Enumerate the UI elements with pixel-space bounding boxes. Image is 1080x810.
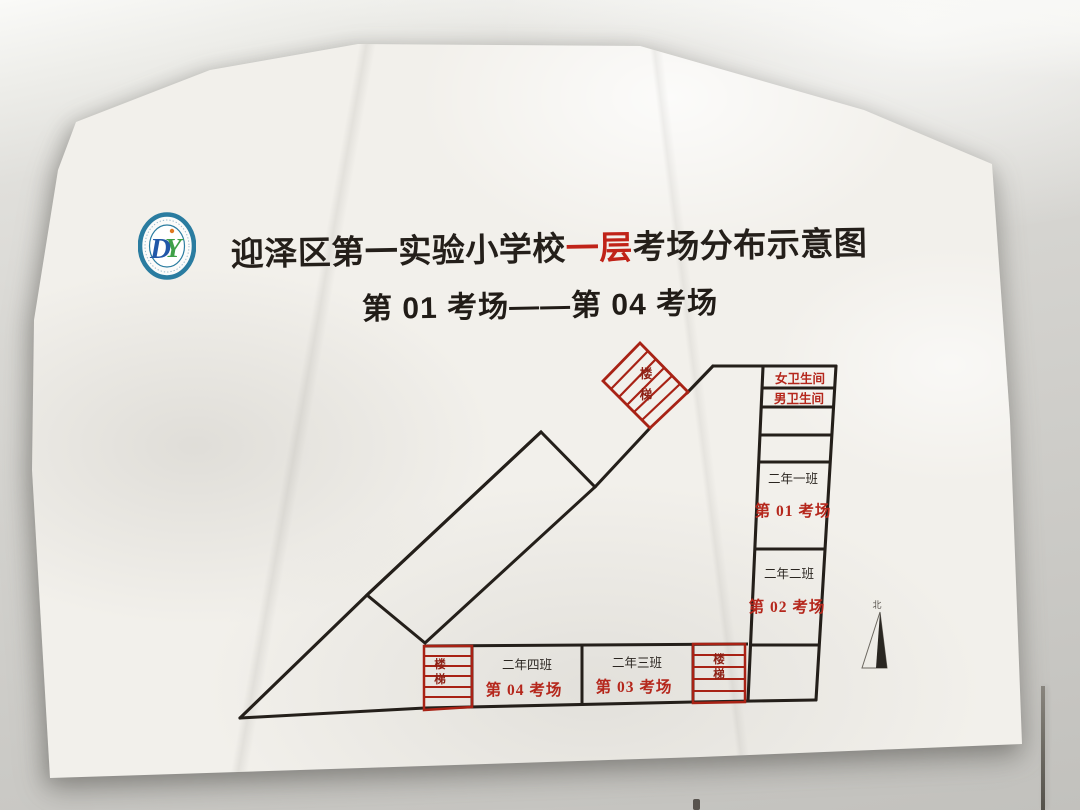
outline-top-diagonal	[687, 366, 713, 393]
class-name-label: 二年四班	[502, 658, 552, 672]
class-name-label: 二年一班	[768, 472, 818, 486]
diagonal-room-block	[367, 432, 595, 643]
stairs-top-label: 楼梯	[640, 366, 653, 402]
poster-paper-wrapper: Y D 迎泽区第一实验小学校一层考场分布示意图 第 01 考场——第 04 考场	[0, 0, 1080, 810]
room-grade2-class1: 二年一班 第 01 考场	[755, 472, 832, 520]
poster-paper: Y D 迎泽区第一实验小学校一层考场分布示意图 第 01 考场——第 04 考场	[0, 0, 1080, 810]
class-name-label: 二年三班	[612, 656, 662, 670]
bottom-row-walls	[425, 644, 748, 707]
stairs-hatching	[425, 656, 471, 697]
class-name-label: 二年二班	[764, 567, 814, 581]
stairs-left: 楼梯	[424, 646, 472, 710]
column-right-edge	[816, 366, 836, 700]
wall-mark	[693, 799, 700, 810]
male-wc-label: 男卫生间	[774, 391, 824, 406]
stairs-right: 楼梯	[693, 644, 745, 703]
column-left-edge	[748, 367, 763, 701]
wall-seam	[1041, 686, 1045, 810]
stairs-top: 楼梯	[603, 343, 688, 428]
room-grade2-class3: 二年三班 第 03 考场	[596, 656, 673, 696]
exam-room-label: 第 02 考场	[749, 597, 826, 616]
exam-room-label: 第 04 考场	[486, 680, 563, 699]
outline-corridor-wall	[595, 428, 650, 487]
exam-room-label: 第 01 考场	[755, 501, 832, 520]
room-grade2-class4: 二年四班 第 04 考场	[486, 658, 563, 699]
floor-plan: 楼梯 楼梯	[0, 0, 1080, 810]
room-grade2-class2: 二年二班 第 02 考场	[749, 567, 826, 616]
female-wc-label: 女卫生间	[775, 371, 825, 386]
photo-of-exam-room-poster: { "scene": { "wall_base_color": "#d8d7d3…	[0, 0, 1080, 810]
exam-room-label: 第 03 考场	[596, 677, 673, 696]
north-label: 北	[872, 600, 881, 610]
stairs-left-label: 楼梯	[434, 657, 446, 686]
north-arrow: 北	[862, 600, 887, 668]
